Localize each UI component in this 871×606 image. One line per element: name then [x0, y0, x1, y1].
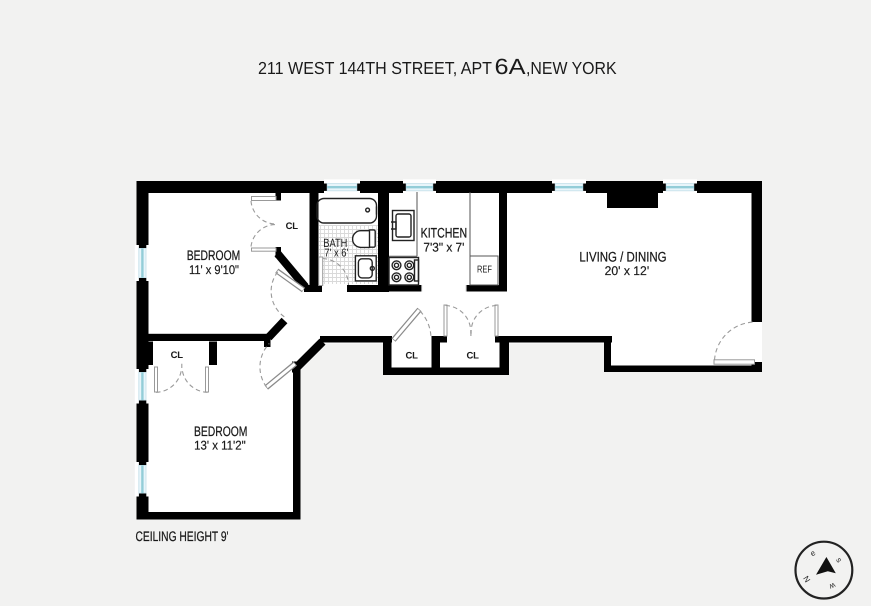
svg-text:20' x 12': 20' x 12'	[605, 264, 650, 278]
svg-text:CL: CL	[286, 221, 299, 232]
svg-text:LIVING / DINING: LIVING / DINING	[579, 250, 666, 265]
svg-text:KITCHEN: KITCHEN	[421, 225, 468, 240]
svg-text:,NEW YORK: ,NEW YORK	[526, 58, 617, 78]
svg-text:211 WEST 144TH STREET, APT: 211 WEST 144TH STREET, APT	[258, 58, 492, 78]
svg-text:CL: CL	[406, 351, 419, 362]
svg-text:6A: 6A	[495, 54, 526, 79]
svg-text:BEDROOM: BEDROOM	[187, 248, 241, 263]
svg-text:7'3" x 7': 7'3" x 7'	[423, 240, 464, 254]
svg-text:CEILING HEIGHT 9': CEILING HEIGHT 9'	[136, 529, 229, 544]
svg-text:11' x 9'10": 11' x 9'10"	[189, 263, 239, 277]
svg-text:BEDROOM: BEDROOM	[194, 424, 248, 439]
svg-text:CL: CL	[171, 350, 184, 361]
svg-text:REF: REF	[477, 265, 492, 276]
svg-text:7' x 6': 7' x 6'	[324, 247, 348, 259]
svg-text:CL: CL	[467, 351, 480, 362]
svg-text:13' x 11'2": 13' x 11'2"	[194, 439, 246, 453]
